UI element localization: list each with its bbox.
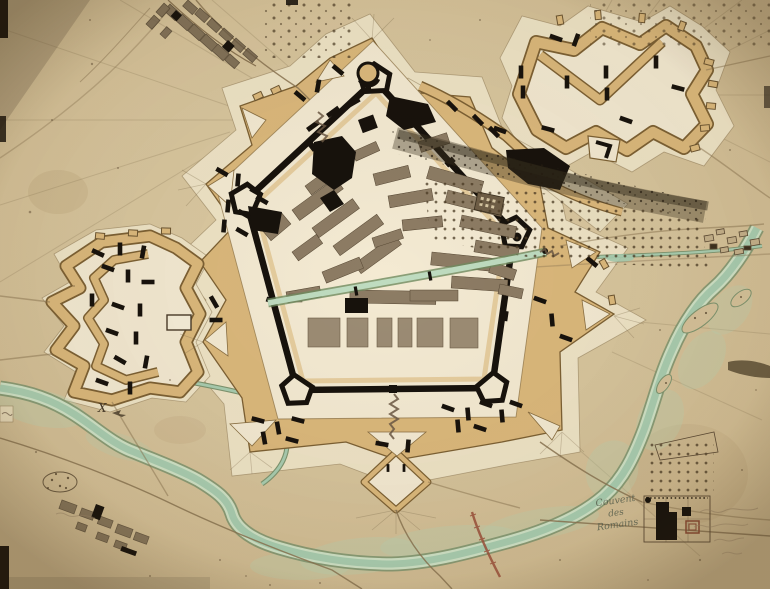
vignette-overlay [0, 0, 770, 589]
antique-map-image: Couvent des Romains X [0, 0, 770, 589]
fortress-map-canvas: Couvent des Romains X [0, 0, 770, 589]
